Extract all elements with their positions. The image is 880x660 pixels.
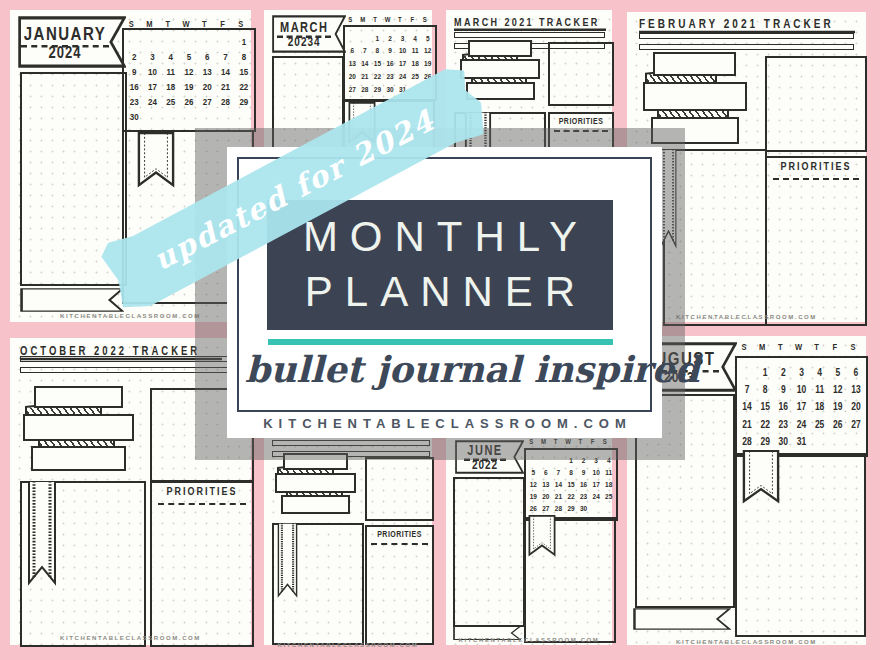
calendar-day: 18: [162, 82, 180, 93]
mini-calendar: 1234567891011121314151617181920212223242…: [735, 356, 868, 457]
calendar-day: 10: [143, 67, 161, 78]
calendar-day: 17: [396, 59, 409, 67]
calendar-day: 20: [346, 71, 359, 79]
year-label: 20234: [288, 35, 321, 49]
weekday-label: F: [406, 17, 418, 24]
calendar-day: 18: [811, 400, 829, 412]
calendar-day: 16: [577, 480, 590, 488]
calendar-day: [198, 37, 216, 48]
ribbon-banner: [275, 453, 360, 518]
calendar-day: 1: [371, 34, 384, 42]
calendar-day: 10: [590, 468, 603, 476]
calendar-day: 14: [359, 59, 372, 67]
calendar-day: [602, 504, 615, 512]
calendar-day: 27: [198, 97, 216, 108]
calendar-day: 10: [792, 383, 810, 395]
weekday-label: W: [789, 342, 807, 352]
pennant-flag: [528, 515, 556, 557]
year-label: 2024: [49, 43, 82, 62]
calendar-day: 22: [756, 418, 774, 430]
calendar-day: 26: [829, 418, 847, 430]
weekday-label: F: [826, 342, 844, 352]
calendar-day: 12: [421, 46, 434, 54]
bookmark-ribbon: [277, 523, 298, 598]
calendar-day: 6: [540, 468, 553, 476]
calendar-day: 15: [235, 67, 253, 78]
calendar-day: 7: [552, 468, 565, 476]
header-bar: [639, 33, 854, 39]
calendar-day: 2: [384, 34, 397, 42]
month-banner: MARCH20234: [272, 15, 346, 53]
calendar-day: 8: [235, 52, 253, 63]
priorities-box: PRIORITIES: [150, 481, 254, 647]
calendar-day: 16: [774, 400, 792, 412]
calendar-day: [847, 435, 865, 447]
weekday-label: S: [844, 342, 862, 352]
calendar-day: 21: [216, 82, 234, 93]
calendar-day: 12: [527, 480, 540, 488]
calendar-day: 25: [602, 492, 615, 500]
notes-box: [365, 457, 434, 521]
ribbon-banner: [23, 386, 141, 478]
calendar-day: 13: [540, 480, 553, 488]
calendar-day: 29: [565, 504, 578, 512]
calendar-day: 10: [396, 46, 409, 54]
weekday-header: SMTWTFS: [344, 17, 431, 24]
calendar-day: 11: [409, 46, 422, 54]
calendar-day: 8: [756, 383, 774, 395]
month-banner: JANUARY2024: [18, 16, 126, 68]
calendar-day: 1: [235, 37, 253, 48]
calendar-day: 16: [125, 82, 143, 93]
calendar-day: 26: [527, 504, 540, 512]
calendar-day: 18: [409, 59, 422, 67]
priorities-label: PRIORITIES: [152, 485, 252, 498]
calendar-day: 6: [346, 46, 359, 54]
calendar-day: 5: [421, 34, 434, 42]
calendar-day: 7: [738, 383, 756, 395]
calendar-day: [180, 37, 198, 48]
header-bar: [454, 32, 605, 38]
calendar-day: 15: [371, 59, 384, 67]
calendar-day: 2: [125, 52, 143, 63]
calendar-day: 28: [359, 84, 372, 92]
calendar-day: 4: [162, 52, 180, 63]
calendar-day: 19: [527, 492, 540, 500]
calendar-day: 21: [552, 492, 565, 500]
calendar-day: [180, 112, 198, 123]
calendar-day: [216, 112, 234, 123]
calendar-day: 28: [738, 435, 756, 447]
page-footer: KITCHENTABLECLASSROOM.COM: [264, 642, 432, 648]
dashed-divider: [773, 178, 859, 180]
teal-divider: [268, 339, 613, 345]
calendar-day: 3: [396, 34, 409, 42]
priorities-label: PRIORITIES: [767, 160, 865, 173]
calendar-day: 25: [811, 418, 829, 430]
calendar-day: [125, 37, 143, 48]
calendar-day: 5: [180, 52, 198, 63]
page-footer: KITCHENTABLECLASSROOM.COM: [10, 635, 251, 641]
pinterest-pin-graphic: JANUARY2024 SMTWTFS 12345678910111213141…: [0, 0, 880, 660]
calendar-day: 21: [738, 418, 756, 430]
calendar-day: 22: [565, 492, 578, 500]
priorities-box: PRIORITIES: [365, 525, 434, 645]
calendar-day: 23: [577, 492, 590, 500]
tracker-title: MARCH 2021 TRACKER: [454, 16, 606, 31]
calendar-day: [143, 37, 161, 48]
weekday-header: SMTWTFS: [735, 342, 862, 352]
calendar-day: 25: [162, 97, 180, 108]
calendar-day: 9: [774, 383, 792, 395]
weekday-label: M: [753, 342, 771, 352]
calendar-day: 5: [527, 468, 540, 476]
calendar-day: 14: [738, 400, 756, 412]
tracker-title: FEBRUARY 2021 TRACKER: [639, 17, 855, 33]
calendar-day: 20: [847, 400, 865, 412]
calendar-day: [216, 37, 234, 48]
notes-box: [453, 477, 525, 627]
calendar-day: 14: [216, 67, 234, 78]
calendar-day: 15: [756, 400, 774, 412]
calendar-day: 30: [125, 112, 143, 123]
calendar-day: 9: [125, 67, 143, 78]
calendar-day: 20: [540, 492, 553, 500]
weekday-label: T: [394, 17, 406, 24]
notes-box: [548, 42, 614, 106]
calendar-day: 6: [198, 52, 216, 63]
calendar-day: [359, 34, 372, 42]
pennant-flag: [742, 450, 780, 504]
title-block: MONTHLY PLANNER: [267, 200, 613, 330]
bottom-banner: [633, 608, 731, 630]
weekday-label: T: [771, 342, 789, 352]
weekday-label: S: [344, 17, 356, 24]
weekday-label: S: [735, 342, 753, 352]
calendar-day: 13: [198, 67, 216, 78]
calendar-day: 29: [371, 84, 384, 92]
calendar-day: 23: [384, 71, 397, 79]
calendar-day: 11: [811, 383, 829, 395]
calendar-day: [162, 112, 180, 123]
calendar-day: 5: [829, 366, 847, 378]
calendar-day: 15: [565, 480, 578, 488]
calendar-day: 27: [847, 418, 865, 430]
calendar-day: 22: [371, 71, 384, 79]
calendar-day: 24: [590, 492, 603, 500]
calendar-day: [829, 435, 847, 447]
calendar-day: 25: [409, 71, 422, 79]
weekday-label: M: [356, 17, 368, 24]
calendar-day: 28: [216, 97, 234, 108]
calendar-day: 16: [384, 59, 397, 67]
priorities-box: PRIORITIES: [765, 156, 867, 326]
priorities-label: PRIORITIES: [367, 529, 432, 538]
calendar-day: 26: [180, 97, 198, 108]
weekday-label: T: [369, 17, 381, 24]
calendar-day: 12: [180, 67, 198, 78]
card-title-line1: MONTHLY: [291, 210, 589, 265]
calendar-day: 3: [792, 366, 810, 378]
calendar-day: [198, 112, 216, 123]
calendar-day: 29: [235, 97, 253, 108]
calendar-day: 21: [359, 71, 372, 79]
calendar-day: 7: [216, 52, 234, 63]
calendar-day: [346, 34, 359, 42]
bookmark-ribbon: [27, 481, 57, 586]
weekday-label: W: [381, 17, 393, 24]
calendar-day: 27: [346, 84, 359, 92]
notes-box: [765, 56, 867, 152]
calendar-day: 12: [829, 383, 847, 395]
card-title-line2: PLANNER: [293, 265, 587, 320]
calendar-day: 28: [552, 504, 565, 512]
header-bar: [639, 44, 854, 50]
calendar-day: [738, 366, 756, 378]
calendar-day: [162, 37, 180, 48]
calendar-day: 13: [346, 59, 359, 67]
calendar-day: 17: [590, 480, 603, 488]
calendar-day: 6: [847, 366, 865, 378]
page-footer: KITCHENTABLECLASSROOM.COM: [446, 637, 612, 643]
calendar-day: 18: [602, 480, 615, 488]
site-url: KITCHENTABLECLASSROOM.COM: [227, 416, 662, 431]
dashed-divider: [158, 503, 246, 505]
calendar-day: 24: [396, 71, 409, 79]
calendar-day: 19: [180, 82, 198, 93]
bottom-banner: [20, 288, 124, 312]
calendar-day: 17: [792, 400, 810, 412]
calendar-day: 13: [847, 383, 865, 395]
weekday-label: T: [808, 342, 826, 352]
calendar-day: 17: [143, 82, 161, 93]
calendar-day: 22: [235, 82, 253, 93]
calendar-day: [590, 504, 603, 512]
calendar-day: 24: [792, 418, 810, 430]
calendar-day: 31: [792, 435, 810, 447]
calendar-day: [143, 112, 161, 123]
calendar-day: 2: [774, 366, 792, 378]
calendar-day: 27: [540, 504, 553, 512]
calendar-day: 8: [565, 468, 578, 476]
calendar-day: 8: [371, 46, 384, 54]
calendar-day: [811, 435, 829, 447]
calendar-day: 11: [162, 67, 180, 78]
calendar-day: 19: [421, 59, 434, 67]
calendar-day: 9: [577, 468, 590, 476]
calendar-day: 14: [552, 480, 565, 488]
calendar-day: 1: [756, 366, 774, 378]
calendar-day: 23: [125, 97, 143, 108]
card-subtitle: bullet journal inspired: [245, 348, 644, 390]
calendar-day: 29: [756, 435, 774, 447]
dashed-divider: [371, 543, 428, 545]
calendar-day: 23: [774, 418, 792, 430]
calendar-day: 24: [143, 97, 161, 108]
page-footer: KITCHENTABLECLASSROOM.COM: [627, 639, 866, 645]
calendar-day: [235, 112, 253, 123]
calendar-day: 30: [384, 84, 397, 92]
calendar-day: 11: [602, 468, 615, 476]
calendar-day: 7: [359, 46, 372, 54]
calendar-day: 30: [774, 435, 792, 447]
calendar-day: 20: [198, 82, 216, 93]
calendar-day: 4: [409, 34, 422, 42]
pennant-flag: [137, 132, 175, 188]
calendar-day: 3: [143, 52, 161, 63]
priorities-label: PRIORITIES: [550, 116, 612, 125]
calendar-day: 9: [384, 46, 397, 54]
mini-calendar: 1234567891011121314151617181920212223242…: [122, 28, 256, 132]
calendar-day: 30: [577, 504, 590, 512]
ribbon-banner: [460, 40, 544, 104]
calendar-day: 4: [811, 366, 829, 378]
calendar-day: 19: [829, 400, 847, 412]
weekday-label: S: [419, 17, 431, 24]
